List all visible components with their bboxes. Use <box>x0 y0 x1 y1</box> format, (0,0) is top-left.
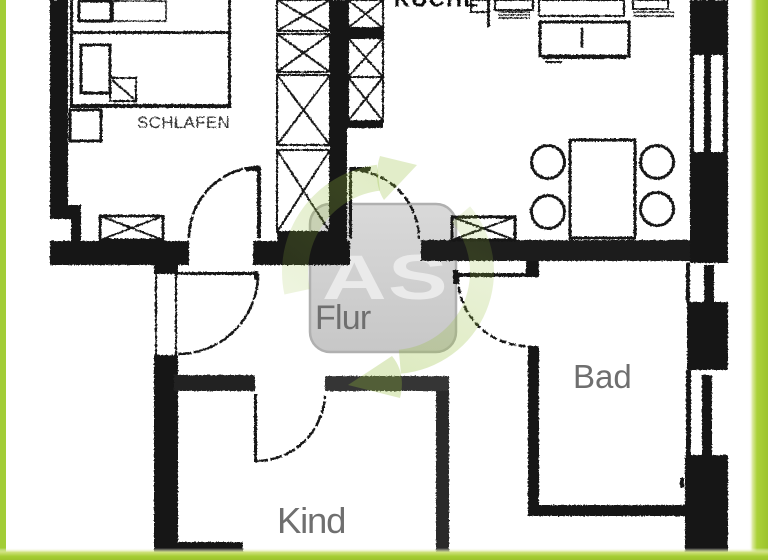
svg-text:SCHLAFEN: SCHLAFEN <box>137 113 230 132</box>
svg-text:Bad: Bad <box>573 358 632 395</box>
svg-text:Flur: Flur <box>315 299 371 337</box>
svg-text:KÜCHE: KÜCHE <box>394 0 480 12</box>
svg-text:Kind: Kind <box>277 500 345 541</box>
